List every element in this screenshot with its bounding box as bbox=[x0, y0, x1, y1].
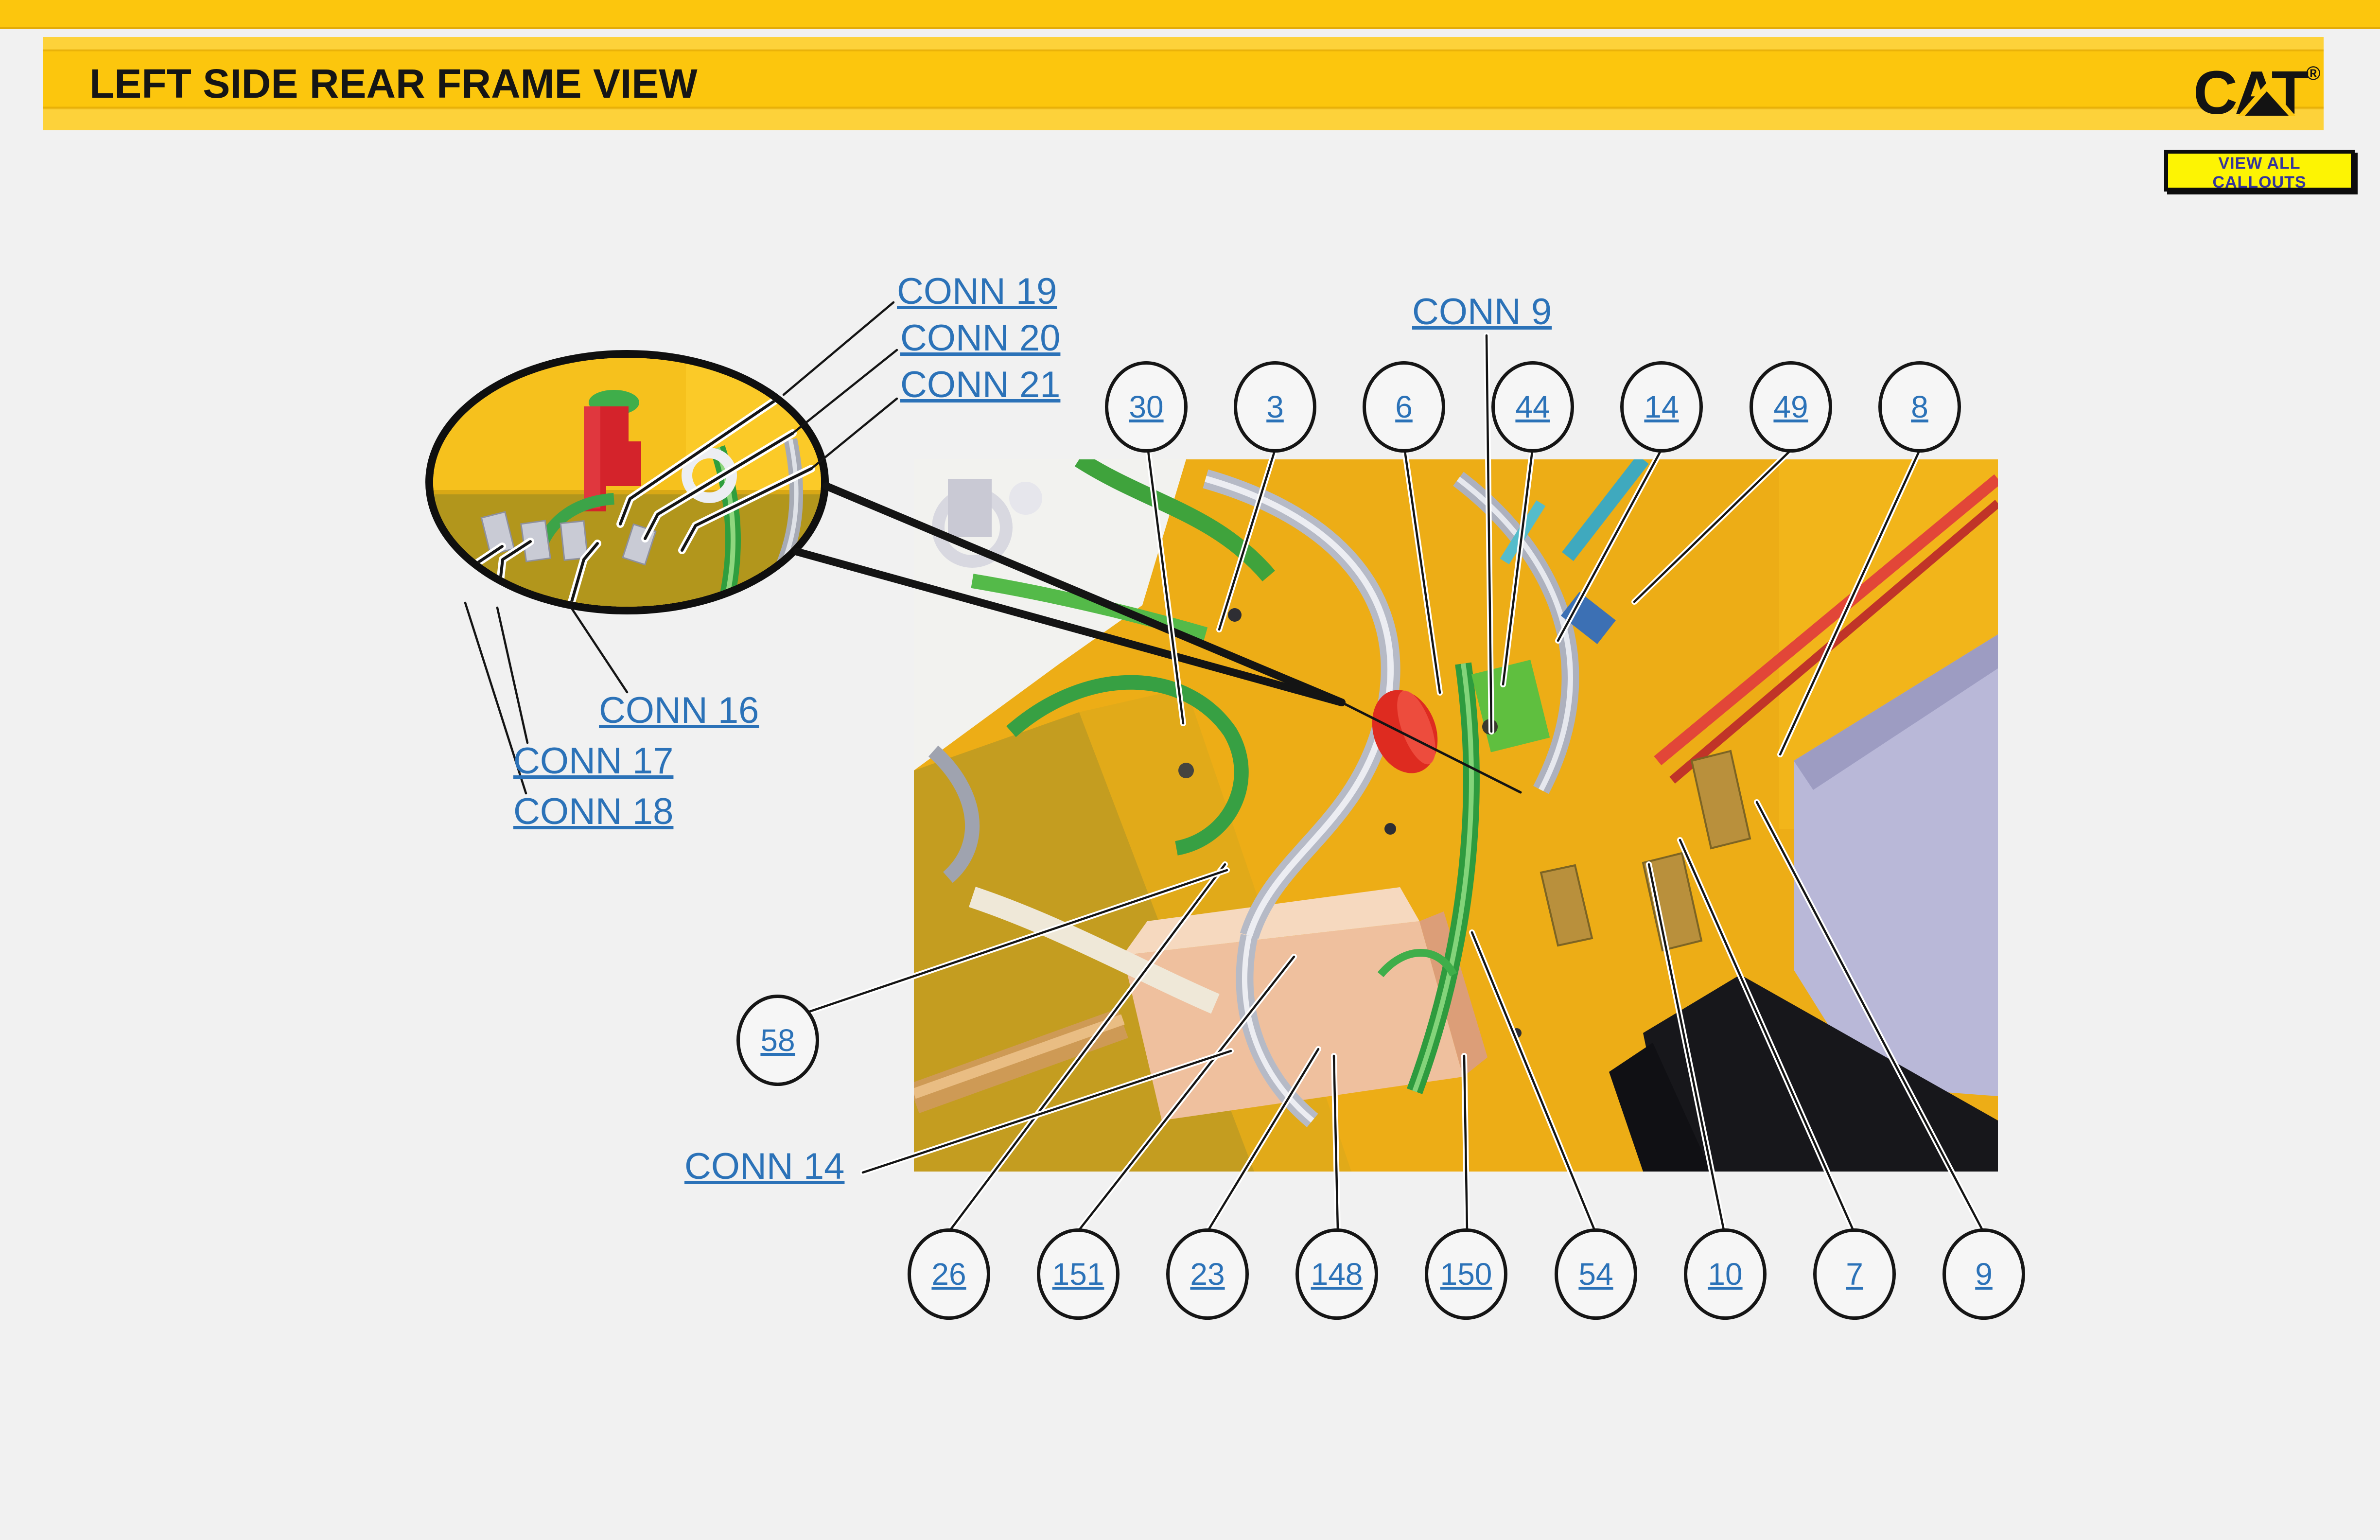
cat-logo-text: CAT bbox=[2193, 59, 2309, 127]
view-all-callouts-button[interactable]: VIEW ALL CALLOUTS bbox=[2164, 150, 2355, 192]
part-callout-151[interactable]: 151 bbox=[1037, 1228, 1120, 1320]
callout-label-conn-16[interactable]: CONN 16 bbox=[599, 689, 759, 732]
part-callout-14[interactable]: 14 bbox=[1620, 361, 1703, 453]
part-callout-9[interactable]: 9 bbox=[1942, 1228, 2025, 1320]
magnifier-inset-graphic bbox=[433, 358, 821, 607]
title-bar: LEFT SIDE REAR FRAME VIEW bbox=[43, 37, 2324, 130]
part-callout-6[interactable]: 6 bbox=[1363, 361, 1445, 453]
callout-label-conn-9[interactable]: CONN 9 bbox=[1412, 291, 1552, 333]
part-callout-49[interactable]: 49 bbox=[1750, 361, 1832, 453]
part-callout-26[interactable]: 26 bbox=[908, 1228, 990, 1320]
part-callout-3[interactable]: 3 bbox=[1234, 361, 1316, 453]
magnifier-inset bbox=[425, 350, 829, 614]
top-accent-strip bbox=[0, 0, 2380, 29]
part-callout-10[interactable]: 10 bbox=[1684, 1228, 1767, 1320]
part-callout-54[interactable]: 54 bbox=[1555, 1228, 1637, 1320]
callout-label-conn-14[interactable]: CONN 14 bbox=[684, 1145, 844, 1188]
callout-label-conn-17[interactable]: CONN 17 bbox=[513, 740, 673, 782]
page-title: LEFT SIDE REAR FRAME VIEW bbox=[43, 60, 698, 107]
part-callout-148[interactable]: 148 bbox=[1295, 1228, 1378, 1320]
callout-label-conn-19[interactable]: CONN 19 bbox=[897, 270, 1057, 313]
part-callout-30[interactable]: 30 bbox=[1105, 361, 1188, 453]
part-callout-7[interactable]: 7 bbox=[1813, 1228, 1896, 1320]
cat-logo: CAT ® bbox=[2193, 59, 2325, 127]
page: LEFT SIDE REAR FRAME VIEW CAT ® VIEW ALL… bbox=[0, 0, 2380, 1540]
part-callout-23[interactable]: 23 bbox=[1166, 1228, 1249, 1320]
machine-photo-graphic bbox=[914, 459, 1998, 1172]
callout-label-conn-20[interactable]: CONN 20 bbox=[900, 317, 1060, 359]
part-callout-58[interactable]: 58 bbox=[736, 995, 819, 1086]
part-callout-8[interactable]: 8 bbox=[1878, 361, 1961, 453]
part-callout-150[interactable]: 150 bbox=[1425, 1228, 1507, 1320]
registered-mark: ® bbox=[2306, 63, 2320, 84]
part-callout-44[interactable]: 44 bbox=[1491, 361, 1574, 453]
callout-label-conn-18[interactable]: CONN 18 bbox=[513, 790, 673, 833]
machine-photo bbox=[914, 459, 1998, 1172]
callout-label-conn-21[interactable]: CONN 21 bbox=[900, 364, 1060, 406]
